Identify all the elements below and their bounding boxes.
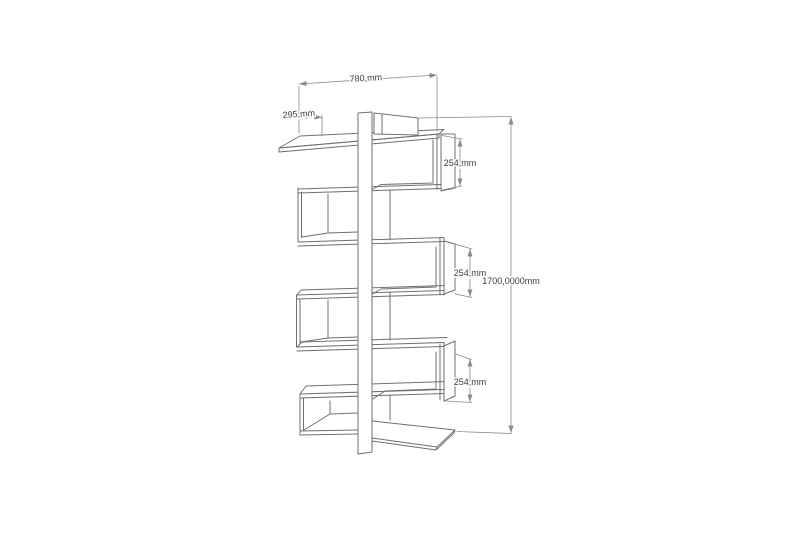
dim-width-label: 780,mm [349, 72, 382, 84]
dim-compartment-bottom-label: 254,mm [454, 377, 487, 387]
dim-compartment-top-label: 254,mm [444, 158, 477, 168]
bookshelf-technical-drawing: 780,mm 295,mm 254,mm 254,mm 254,mm 1700,… [0, 0, 800, 533]
dim-total-height-label: 1700,0000mm [482, 276, 540, 286]
bookshelf-right-box-bottom [373, 341, 455, 401]
bookshelf-spine [358, 112, 390, 454]
dim-depth-label: 295,mm [282, 108, 315, 120]
bookshelf-left-box-upper [298, 188, 358, 242]
bookshelf-left-box-bottom [300, 394, 358, 435]
bookshelf-base-shelf [372, 421, 455, 450]
drawing-canvas: 780,mm 295,mm 254,mm 254,mm 254,mm 1700,… [0, 0, 800, 533]
bookshelf-back-panel [374, 113, 418, 135]
dimension-compartment-middle: 254,mm [454, 245, 487, 298]
bookshelf-left-box-middle [297, 295, 359, 347]
dimension-depth: 295,mm [282, 108, 322, 136]
